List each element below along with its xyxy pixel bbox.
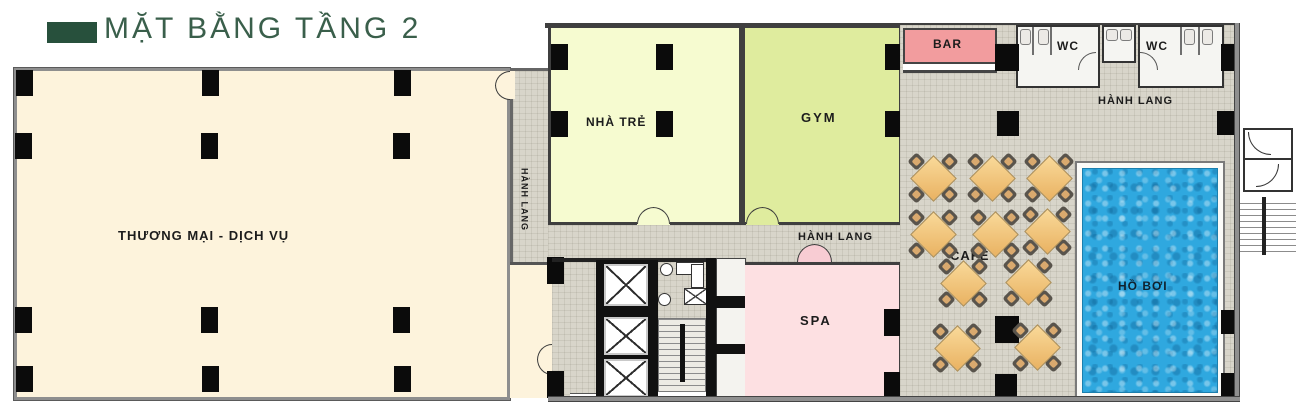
cafe-table — [972, 211, 1018, 257]
sink-fixture — [1120, 29, 1132, 41]
column — [393, 307, 410, 333]
column — [16, 366, 33, 392]
column — [15, 307, 32, 333]
cafe-table — [969, 155, 1015, 201]
pool-label: HỒ BƠI — [1118, 280, 1168, 294]
column — [393, 133, 410, 159]
stair-rail — [680, 324, 685, 382]
room-nursery-label: NHÀ TRẺ — [586, 116, 646, 130]
wall — [716, 296, 746, 308]
room-bar-label: BAR — [933, 38, 962, 52]
stall-divider — [1180, 27, 1182, 55]
stair-rail — [1262, 197, 1266, 255]
room-wc-left-label: WC — [1057, 40, 1079, 54]
column — [551, 111, 568, 137]
stall-divider — [1032, 27, 1034, 55]
room-wc-right-label: WC — [1146, 40, 1168, 54]
shaft-symbol — [660, 263, 673, 276]
cafe-table — [910, 155, 956, 201]
corridor-middle-label: HÀNH LANG — [798, 231, 873, 244]
room-spa-label: SPA — [800, 314, 832, 329]
column — [202, 70, 219, 96]
toilet-fixture — [1184, 29, 1195, 45]
column — [995, 44, 1019, 71]
corridor-vertical-label: HÀNH LANG — [519, 168, 529, 231]
wall — [548, 396, 1240, 402]
corridor-top-label: HÀNH LANG — [1098, 95, 1173, 108]
elevator-shaft — [604, 264, 648, 306]
service-rooms — [716, 258, 746, 400]
room-spa — [745, 262, 902, 400]
room-gym-label: GYM — [801, 111, 837, 126]
wall — [706, 258, 716, 400]
page-title: MẶT BẰNG TẦNG 2 — [104, 12, 421, 46]
bar-counter — [903, 64, 997, 73]
column — [656, 111, 673, 137]
column — [394, 366, 411, 392]
stall-divider — [1198, 27, 1200, 55]
column — [16, 70, 33, 96]
column — [551, 44, 568, 70]
cafe-table — [1026, 155, 1072, 201]
shaft-symbol — [658, 293, 671, 306]
shaft-box — [684, 288, 707, 305]
column — [884, 372, 901, 399]
cafe-table — [1014, 324, 1060, 370]
column — [201, 307, 218, 333]
column — [201, 133, 218, 159]
stall-divider — [1050, 27, 1052, 55]
duct — [691, 264, 704, 288]
toilet-fixture — [1202, 29, 1213, 45]
column — [997, 111, 1019, 136]
cafe-table — [1005, 259, 1051, 305]
column — [656, 44, 673, 70]
exterior-staircase — [1240, 203, 1296, 253]
sink-fixture — [1106, 29, 1118, 41]
room-commerce-label: THƯƠNG MẠI - DỊCH VỤ — [118, 229, 289, 244]
cafe-table — [940, 260, 986, 306]
floor-plan: MẶT BẰNG TẦNG 2 THƯƠNG MẠI - DỊCH VỤ HÀN… — [0, 0, 1300, 414]
cafe-table — [910, 211, 956, 257]
cafe-table — [934, 325, 980, 371]
wall — [1243, 158, 1293, 160]
legend-swatch — [47, 22, 97, 43]
column — [547, 371, 564, 398]
column — [202, 366, 219, 392]
column — [394, 70, 411, 96]
cafe-table — [1024, 208, 1070, 254]
toilet-fixture — [1020, 29, 1031, 45]
toilet-fixture — [1038, 29, 1049, 45]
elevator-shaft — [604, 317, 648, 355]
wall — [716, 344, 746, 354]
column — [15, 133, 32, 159]
column — [884, 309, 901, 336]
elevator-shaft — [604, 359, 648, 397]
